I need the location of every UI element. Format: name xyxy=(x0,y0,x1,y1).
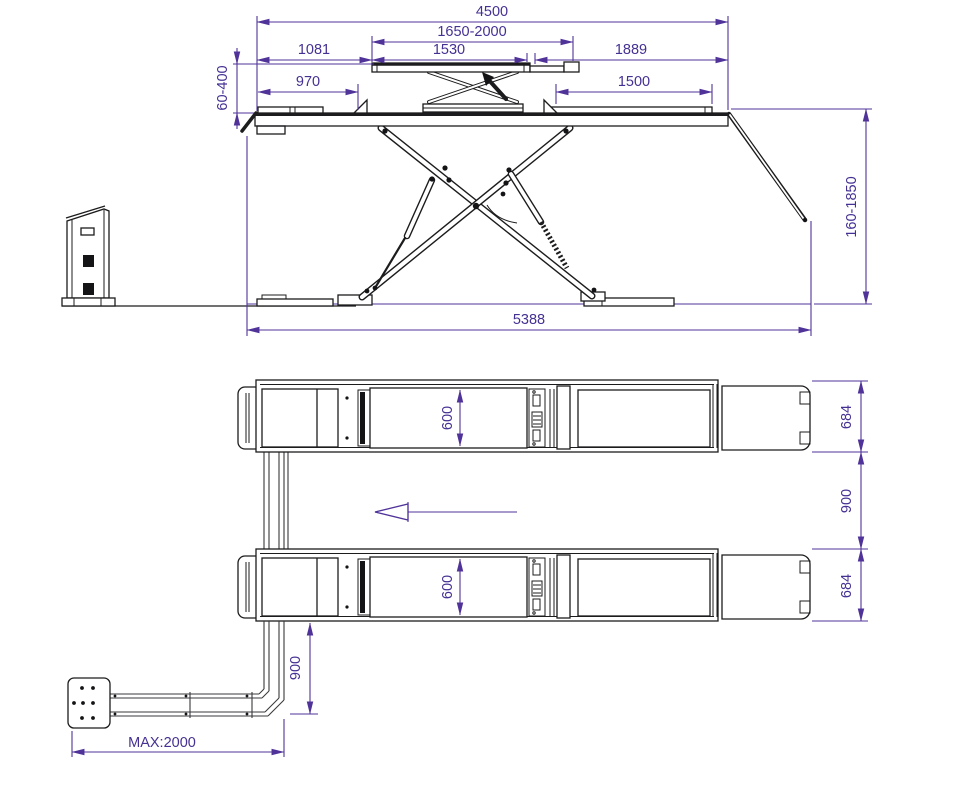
drive-ramp xyxy=(722,555,810,619)
plan-view: 684 900 684 600 600 900 xyxy=(68,380,868,757)
control-console-plan xyxy=(68,678,110,728)
dimension-label: MAX:2000 xyxy=(128,735,196,751)
technical-drawing-page: 4500 1650-2000 1081 1530 1889 970 xyxy=(0,0,955,793)
dimension-label: 684 xyxy=(839,405,855,429)
dim-runway-width-bottom: 684 xyxy=(839,549,861,621)
jack-extension-end xyxy=(564,62,579,72)
dim-flat-right: 1500 xyxy=(556,74,712,92)
drive-direction-arrow xyxy=(375,502,517,522)
drive-up-ramp-side xyxy=(729,114,807,222)
runway-top xyxy=(238,380,810,452)
dim-lift-height-range: 160-1850 xyxy=(844,109,866,304)
tread-plate-right xyxy=(551,107,712,113)
dimension-label: 600 xyxy=(440,406,456,430)
approach-flap-left xyxy=(242,113,256,131)
dimension-label: 5388 xyxy=(513,312,545,328)
dim-overall-length-floor: 5388 xyxy=(247,312,811,330)
dimension-label: 160-1850 xyxy=(844,176,860,237)
side-elevation-view: 4500 1650-2000 1081 1530 1889 970 xyxy=(62,4,872,336)
dimension-label: 900 xyxy=(839,489,855,513)
dimension-label: 60-400 xyxy=(215,65,231,110)
dim-runway-width-top: 684 xyxy=(839,381,861,452)
dim-jack-platform-range: 1650-2000 xyxy=(372,24,573,42)
console-button-upper xyxy=(83,255,94,267)
scissor-lift-drawing: 4500 1650-2000 1081 1530 1889 970 xyxy=(0,0,955,793)
dim-console-offset: 900 xyxy=(288,623,318,714)
jack-extension-arm xyxy=(530,66,564,72)
dimension-label: 1650-2000 xyxy=(437,24,506,40)
dimension-label: 970 xyxy=(296,74,320,90)
wheel-stop-left xyxy=(354,100,367,113)
dim-offset-right: 1889 xyxy=(535,42,728,60)
cable-conduit xyxy=(110,621,284,718)
dimension-label: 1500 xyxy=(618,74,650,90)
scissor-mechanism xyxy=(362,128,596,297)
dimension-label: 684 xyxy=(839,574,855,598)
dimension-label: 1530 xyxy=(433,42,465,58)
dimension-label: 1889 xyxy=(615,42,647,58)
dimension-label: 900 xyxy=(288,656,304,680)
side-view-dimensions: 4500 1650-2000 1081 1530 1889 970 xyxy=(215,4,872,336)
runway-bottom xyxy=(238,549,810,621)
console-base xyxy=(62,298,115,306)
dimension-label: 1081 xyxy=(298,42,330,58)
hydraulic-cylinder-left xyxy=(375,180,432,288)
drive-ramp xyxy=(722,386,810,450)
conduit-crossmembers xyxy=(264,452,288,549)
dim-offset-left: 1081 xyxy=(257,42,372,60)
console-button-lower xyxy=(83,283,94,295)
dim-flat-left: 970 xyxy=(258,74,358,92)
dimension-label: 4500 xyxy=(476,4,508,20)
dim-runway-gap: 900 xyxy=(839,452,861,549)
control-console-side xyxy=(62,206,115,306)
dim-overall-length-top: 4500 xyxy=(257,4,728,22)
dimension-label: 600 xyxy=(440,575,456,599)
dim-jack-platform-fixed: 1530 xyxy=(372,42,527,60)
dim-jack-lift-height: 60-400 xyxy=(215,48,237,129)
console-vent-slot xyxy=(81,228,94,235)
